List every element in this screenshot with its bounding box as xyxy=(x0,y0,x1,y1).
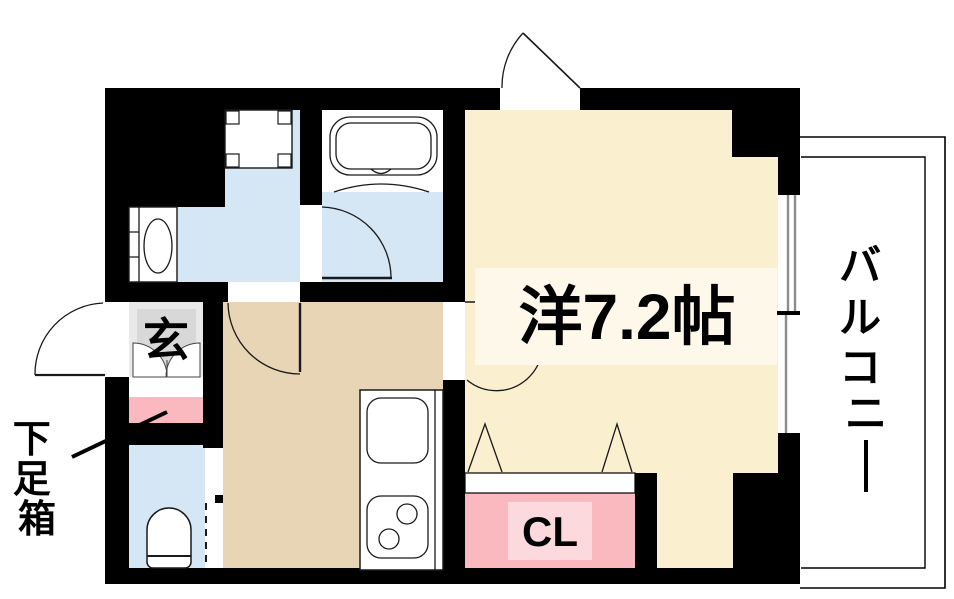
opening-entrance xyxy=(105,302,129,377)
main-room-label: 洋7.2帖 xyxy=(519,281,736,353)
floorplan-svg: 洋7.2帖 玄 CL 下 足 箱 バ ル コ ニ xyxy=(0,0,954,599)
wall-topleft-block xyxy=(105,88,225,207)
wall-entrance-right xyxy=(203,302,223,448)
bathroom-floor xyxy=(322,192,443,282)
pan-corner-tl xyxy=(226,111,239,124)
top-door-arc xyxy=(502,33,523,88)
opening-top-door xyxy=(500,88,580,110)
closet-door-track xyxy=(465,473,635,493)
washroom-area-left xyxy=(177,207,225,282)
shoebox-label-char-2: 足 xyxy=(13,459,51,501)
balcony-label-dash-glyph xyxy=(864,440,868,492)
entrance-door-arc xyxy=(35,303,103,375)
shoebox-label-char-3: 箱 xyxy=(18,499,56,541)
balcony-label: バ ル コ ニ xyxy=(839,242,893,437)
closet-label: CL xyxy=(522,508,578,555)
wall-bath-left xyxy=(300,110,322,207)
bathroom-tub-platform xyxy=(322,108,443,192)
wall-closet-right xyxy=(635,473,657,568)
toilet-fixture xyxy=(147,508,191,568)
pan-corner-tr xyxy=(278,111,291,124)
balcony-label-char-2: ル xyxy=(839,294,881,341)
opening-mainroom xyxy=(443,302,465,380)
pan-corner-br xyxy=(278,154,291,167)
floorplan-canvas: 洋7.2帖 玄 CL 下 足 箱 バ ル コ ニ xyxy=(0,0,954,599)
wall-left xyxy=(105,207,129,583)
opening-bathroom xyxy=(300,205,322,282)
balcony-label-char-1: バ xyxy=(839,242,881,289)
balcony-label-char-3: コ xyxy=(839,344,881,391)
wall-topright-block xyxy=(732,110,800,157)
shoebox-area xyxy=(129,397,205,423)
kitchen-counter xyxy=(360,390,443,570)
top-door-leaf xyxy=(523,33,580,88)
wall-right-upper xyxy=(778,157,800,195)
wall-toilet-stub xyxy=(215,495,223,503)
wall-bottom xyxy=(105,568,800,584)
wall-bottomright-block xyxy=(733,473,800,584)
pan-corner-bl xyxy=(226,154,239,167)
opening-washroom xyxy=(228,282,300,302)
shoebox-label: 下 足 箱 xyxy=(13,419,62,541)
entrance-label: 玄 xyxy=(143,314,189,366)
shoebox-label-char-1: 下 xyxy=(13,419,51,461)
balcony-label-char-4: ニ xyxy=(845,390,887,437)
